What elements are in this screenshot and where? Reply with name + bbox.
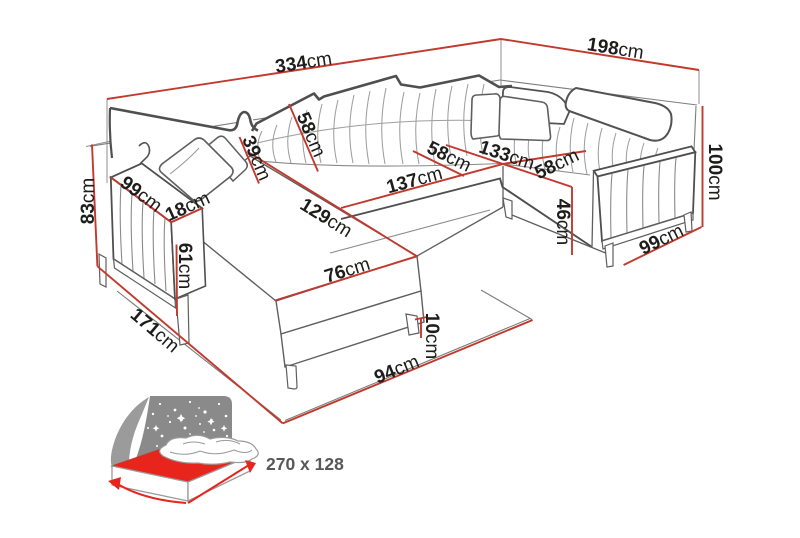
svg-text:10cm: 10cm: [421, 313, 442, 359]
svg-text:83cm: 83cm: [78, 178, 99, 224]
svg-text:270 x 128: 270 x 128: [266, 454, 344, 474]
svg-text:46cm: 46cm: [552, 199, 573, 245]
svg-text:61cm: 61cm: [174, 243, 195, 289]
svg-text:100cm: 100cm: [704, 143, 725, 200]
